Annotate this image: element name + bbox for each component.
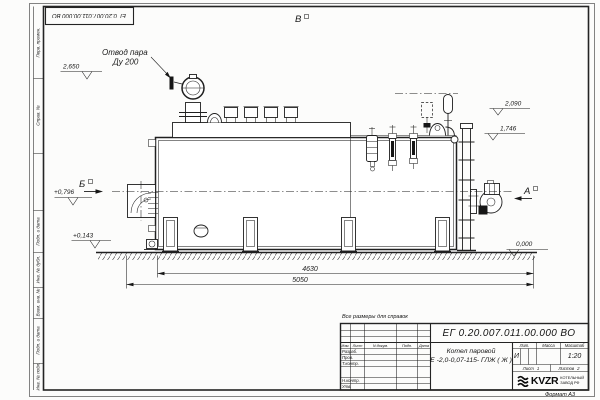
view-label-v: В bbox=[295, 14, 302, 25]
sheet-ref-mark bbox=[89, 180, 93, 184]
deck-fittings bbox=[208, 107, 299, 123]
margin-cell-vzam-inv: Взам. инв. № bbox=[33, 288, 43, 319]
manufacturer-logo: KVZR КОТЕЛЬНЫЙ ЗАВОД РФ bbox=[513, 372, 588, 389]
margin-label: Подп. и дата bbox=[36, 217, 41, 245]
view-arrow-a bbox=[514, 196, 522, 201]
logo-text: KVZR bbox=[531, 375, 558, 387]
sheet-label: Лист bbox=[523, 366, 534, 371]
sheet-value: 1 bbox=[537, 366, 539, 371]
product-name-line2: Е -2,0-0,07-115- ГЛЖ ( Ж ) bbox=[430, 356, 512, 365]
flue-column bbox=[457, 124, 476, 251]
safety-valve-boxes bbox=[224, 107, 299, 123]
margin-cell-inv-dubl: Инв. № дубл. bbox=[33, 253, 43, 288]
sheet-cell: Лист 1 bbox=[513, 365, 549, 372]
mass-header: Масса bbox=[537, 343, 561, 349]
col-data: Дата bbox=[418, 343, 431, 349]
view-label-a: А bbox=[523, 186, 530, 197]
top-deck bbox=[173, 123, 351, 138]
view-label-b: Б bbox=[79, 179, 85, 190]
format-label: Формат А3 bbox=[530, 391, 590, 399]
margin-cell-podp-data-1: Подп. и дата bbox=[33, 211, 43, 253]
elev-0796: +0,796 bbox=[54, 189, 74, 196]
logo-caption-line1: КОТЕЛЬНЫЙ bbox=[560, 376, 584, 380]
logo-caption-line2: ЗАВОД РФ bbox=[560, 381, 584, 385]
steam-outlet-callout: Отвод пара Ду 200 bbox=[102, 48, 171, 79]
product-name: Котел паровой Е -2,0-0,07-115- ГЛЖ ( Ж ) bbox=[431, 342, 511, 370]
sheets-value: 2 bbox=[577, 366, 579, 371]
valve-handwheel bbox=[170, 77, 174, 90]
ground-hatch bbox=[98, 253, 535, 260]
product-name-line1: Котел паровой bbox=[447, 347, 496, 356]
margin-label: Перв. примен. bbox=[36, 28, 41, 58]
margin-label: Инв. № подл. bbox=[36, 363, 41, 391]
callout-text-2: Ду 200 bbox=[112, 58, 139, 67]
view-arrow-b bbox=[96, 189, 104, 194]
col-izm: Изм. bbox=[341, 343, 351, 349]
row-prov: Пров. bbox=[342, 355, 353, 360]
margin-label: Справ. № bbox=[36, 106, 41, 126]
elev-0000: 0,000 bbox=[516, 241, 533, 248]
elev-1746: 1,746 bbox=[500, 126, 517, 133]
steam-valve bbox=[170, 75, 208, 123]
capsule-fitting bbox=[444, 95, 453, 114]
reference-note: Все размеры для справок bbox=[342, 314, 408, 320]
col-list: Лист bbox=[351, 343, 365, 349]
sheets-label: Листов bbox=[558, 366, 574, 371]
sheet-ref-mark bbox=[534, 187, 538, 191]
lit-value: И bbox=[513, 349, 521, 365]
row-tkontr: Т.контр. bbox=[342, 361, 359, 366]
hidden-fitting bbox=[422, 103, 433, 118]
row-nkontr: Н.контр. bbox=[342, 378, 360, 383]
margin-label: Инв. № дубл. bbox=[36, 256, 41, 284]
title-doc-number: ЕГ 0.20.007.011.00.000 ВО bbox=[431, 324, 587, 342]
margin-label: Взам. инв. № bbox=[36, 289, 41, 317]
margin-label: Подп. и дата bbox=[36, 327, 41, 355]
logo-caption: КОТЕЛЬНЫЙ ЗАВОД РФ bbox=[560, 376, 584, 384]
scale-value: 1:20 bbox=[561, 349, 589, 365]
margin-cell-inv-podl: Инв. № подл. bbox=[33, 364, 43, 391]
manhole bbox=[194, 225, 208, 237]
row-utv: Утв. bbox=[342, 384, 352, 389]
margin-cell-sprav-no: Справ. № bbox=[33, 79, 43, 154]
drawing-sheet: 4630 5050 2,650 +0,796 +0,143 2,090 1,74… bbox=[0, 0, 600, 400]
elev-2650: 2,650 bbox=[62, 64, 80, 71]
elev-0143: +0,143 bbox=[73, 233, 93, 240]
margin-cell-perv-primen: Перв. примен. bbox=[33, 7, 43, 78]
ground bbox=[96, 253, 537, 261]
col-doc: N докум. bbox=[365, 343, 397, 349]
dim-5050: 5050 bbox=[292, 277, 308, 284]
elev-2090: 2,090 bbox=[504, 101, 522, 108]
rear-burner bbox=[469, 181, 503, 215]
dimension-lines: 4630 5050 bbox=[127, 256, 534, 289]
rotated-doc-stamp: ЕГ 0.20.007.011.00.000 ВО bbox=[45, 7, 133, 24]
sheet-ref-mark bbox=[305, 15, 309, 19]
sheets-cell: Листов 2 bbox=[550, 365, 588, 372]
logo-waves-icon bbox=[517, 375, 529, 387]
col-podp: Подп. bbox=[397, 343, 418, 349]
margin-cell-podp-data-2: Подп. и дата bbox=[33, 319, 43, 364]
row-razrab: Разраб. bbox=[342, 349, 357, 354]
callout-text-1: Отвод пара bbox=[102, 48, 148, 57]
dim-4630: 4630 bbox=[302, 266, 318, 273]
